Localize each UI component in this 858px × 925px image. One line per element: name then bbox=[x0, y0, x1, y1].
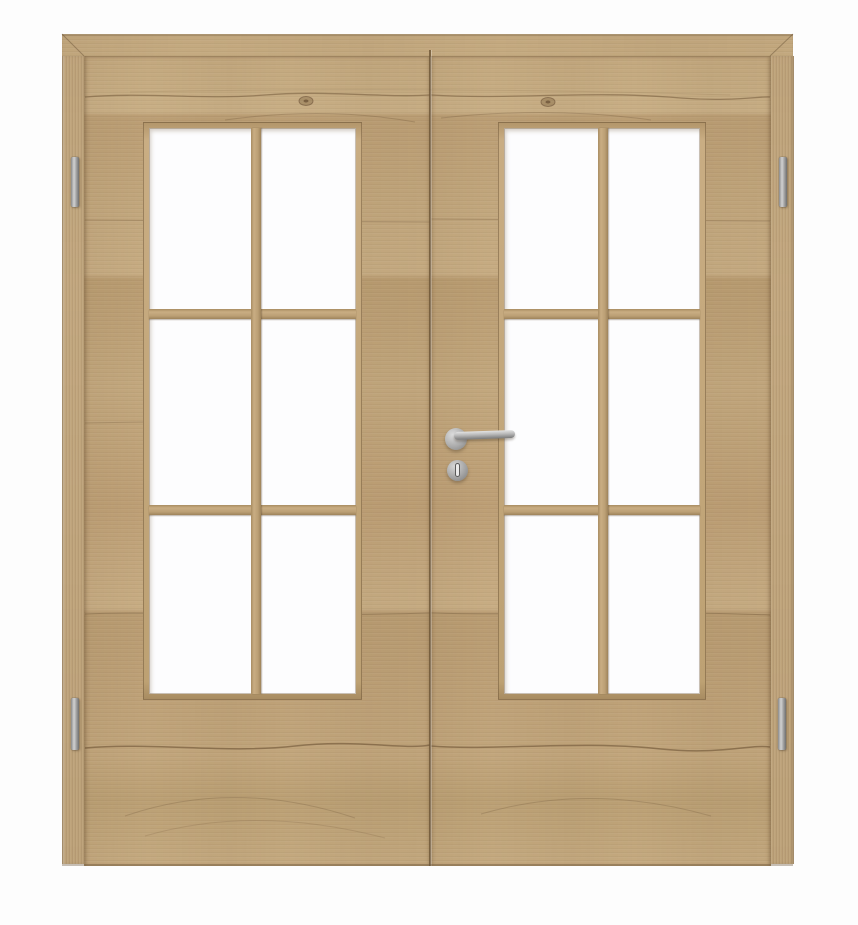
muntin-vertical bbox=[251, 128, 261, 694]
hinge-right-bottom bbox=[778, 698, 786, 750]
keyhole bbox=[455, 463, 460, 477]
hinge-left-top bbox=[71, 157, 79, 207]
door-frame-head bbox=[62, 34, 793, 57]
hinge-right-top bbox=[779, 157, 787, 207]
muntin-vertical bbox=[598, 128, 608, 694]
hinge-left-bottom bbox=[71, 698, 79, 750]
door-product-image bbox=[0, 0, 858, 925]
glazing-panel-right bbox=[498, 122, 706, 700]
glazing-panel-left bbox=[143, 122, 362, 700]
door-leaf-gap-highlight bbox=[431, 50, 432, 866]
